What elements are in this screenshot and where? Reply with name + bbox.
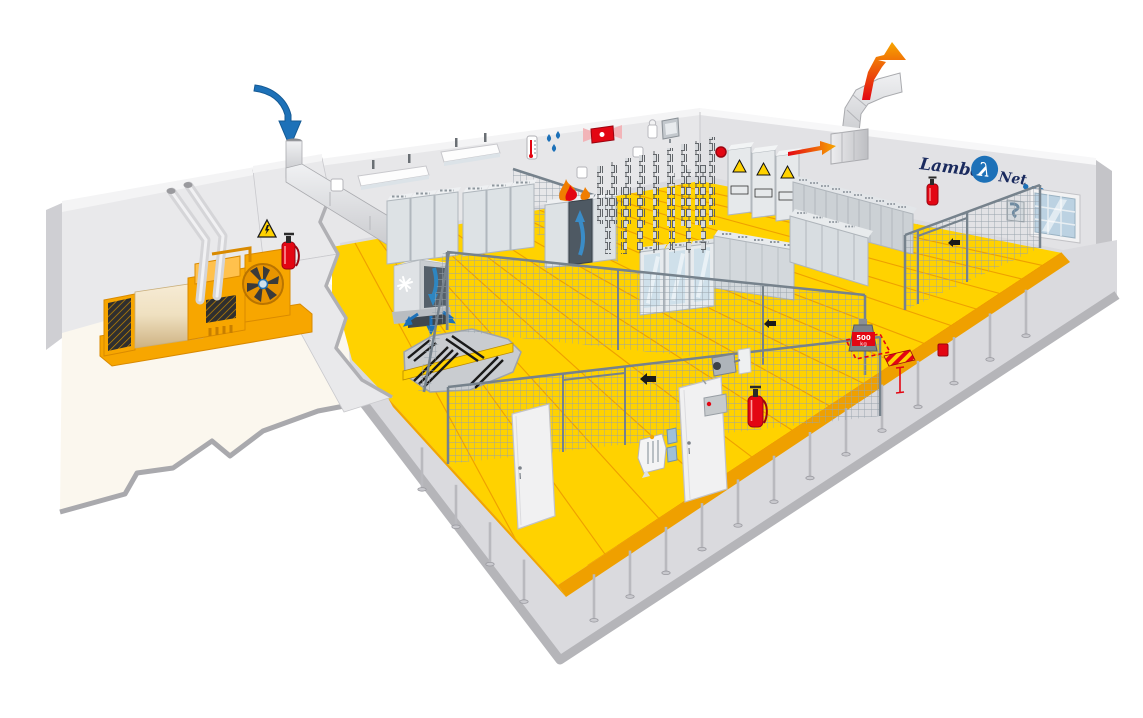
door-handle [687,441,691,445]
alarm-light [716,147,726,157]
motion-sensor-icon [648,120,657,138]
generator-air-grille [108,298,131,351]
emergency-stop-button [938,344,948,356]
hazard-label [731,186,748,194]
exhaust-duct-stub [831,129,868,164]
door-handle [518,466,522,470]
wall-sensor [331,179,343,191]
electrical-panel [728,142,754,215]
access-card-reader [704,394,727,416]
electrical-panel [752,145,778,218]
pipe-opening [167,188,176,194]
thermometer-icon [527,136,537,159]
cold-air-arrow-down-icon [254,85,301,147]
pipe-opening [184,182,193,188]
wall-sensor [577,167,587,178]
datacenter-illustration: Lambda λ Net [0,0,1143,718]
badge-station-light [650,435,654,439]
reader-light [707,402,711,406]
camera-lens [713,362,721,370]
door-left [512,404,555,529]
scene-svg: Lambda λ Net [0,0,1143,718]
fan-hub [259,280,268,289]
weight-knob [859,319,867,325]
logo-lambda-symbol: λ [975,158,992,182]
hazard-label [755,189,772,197]
weight-unit: kg [860,342,867,348]
generator-room-outer-wall-edge [46,203,62,350]
server-rack-row-b [463,179,537,256]
